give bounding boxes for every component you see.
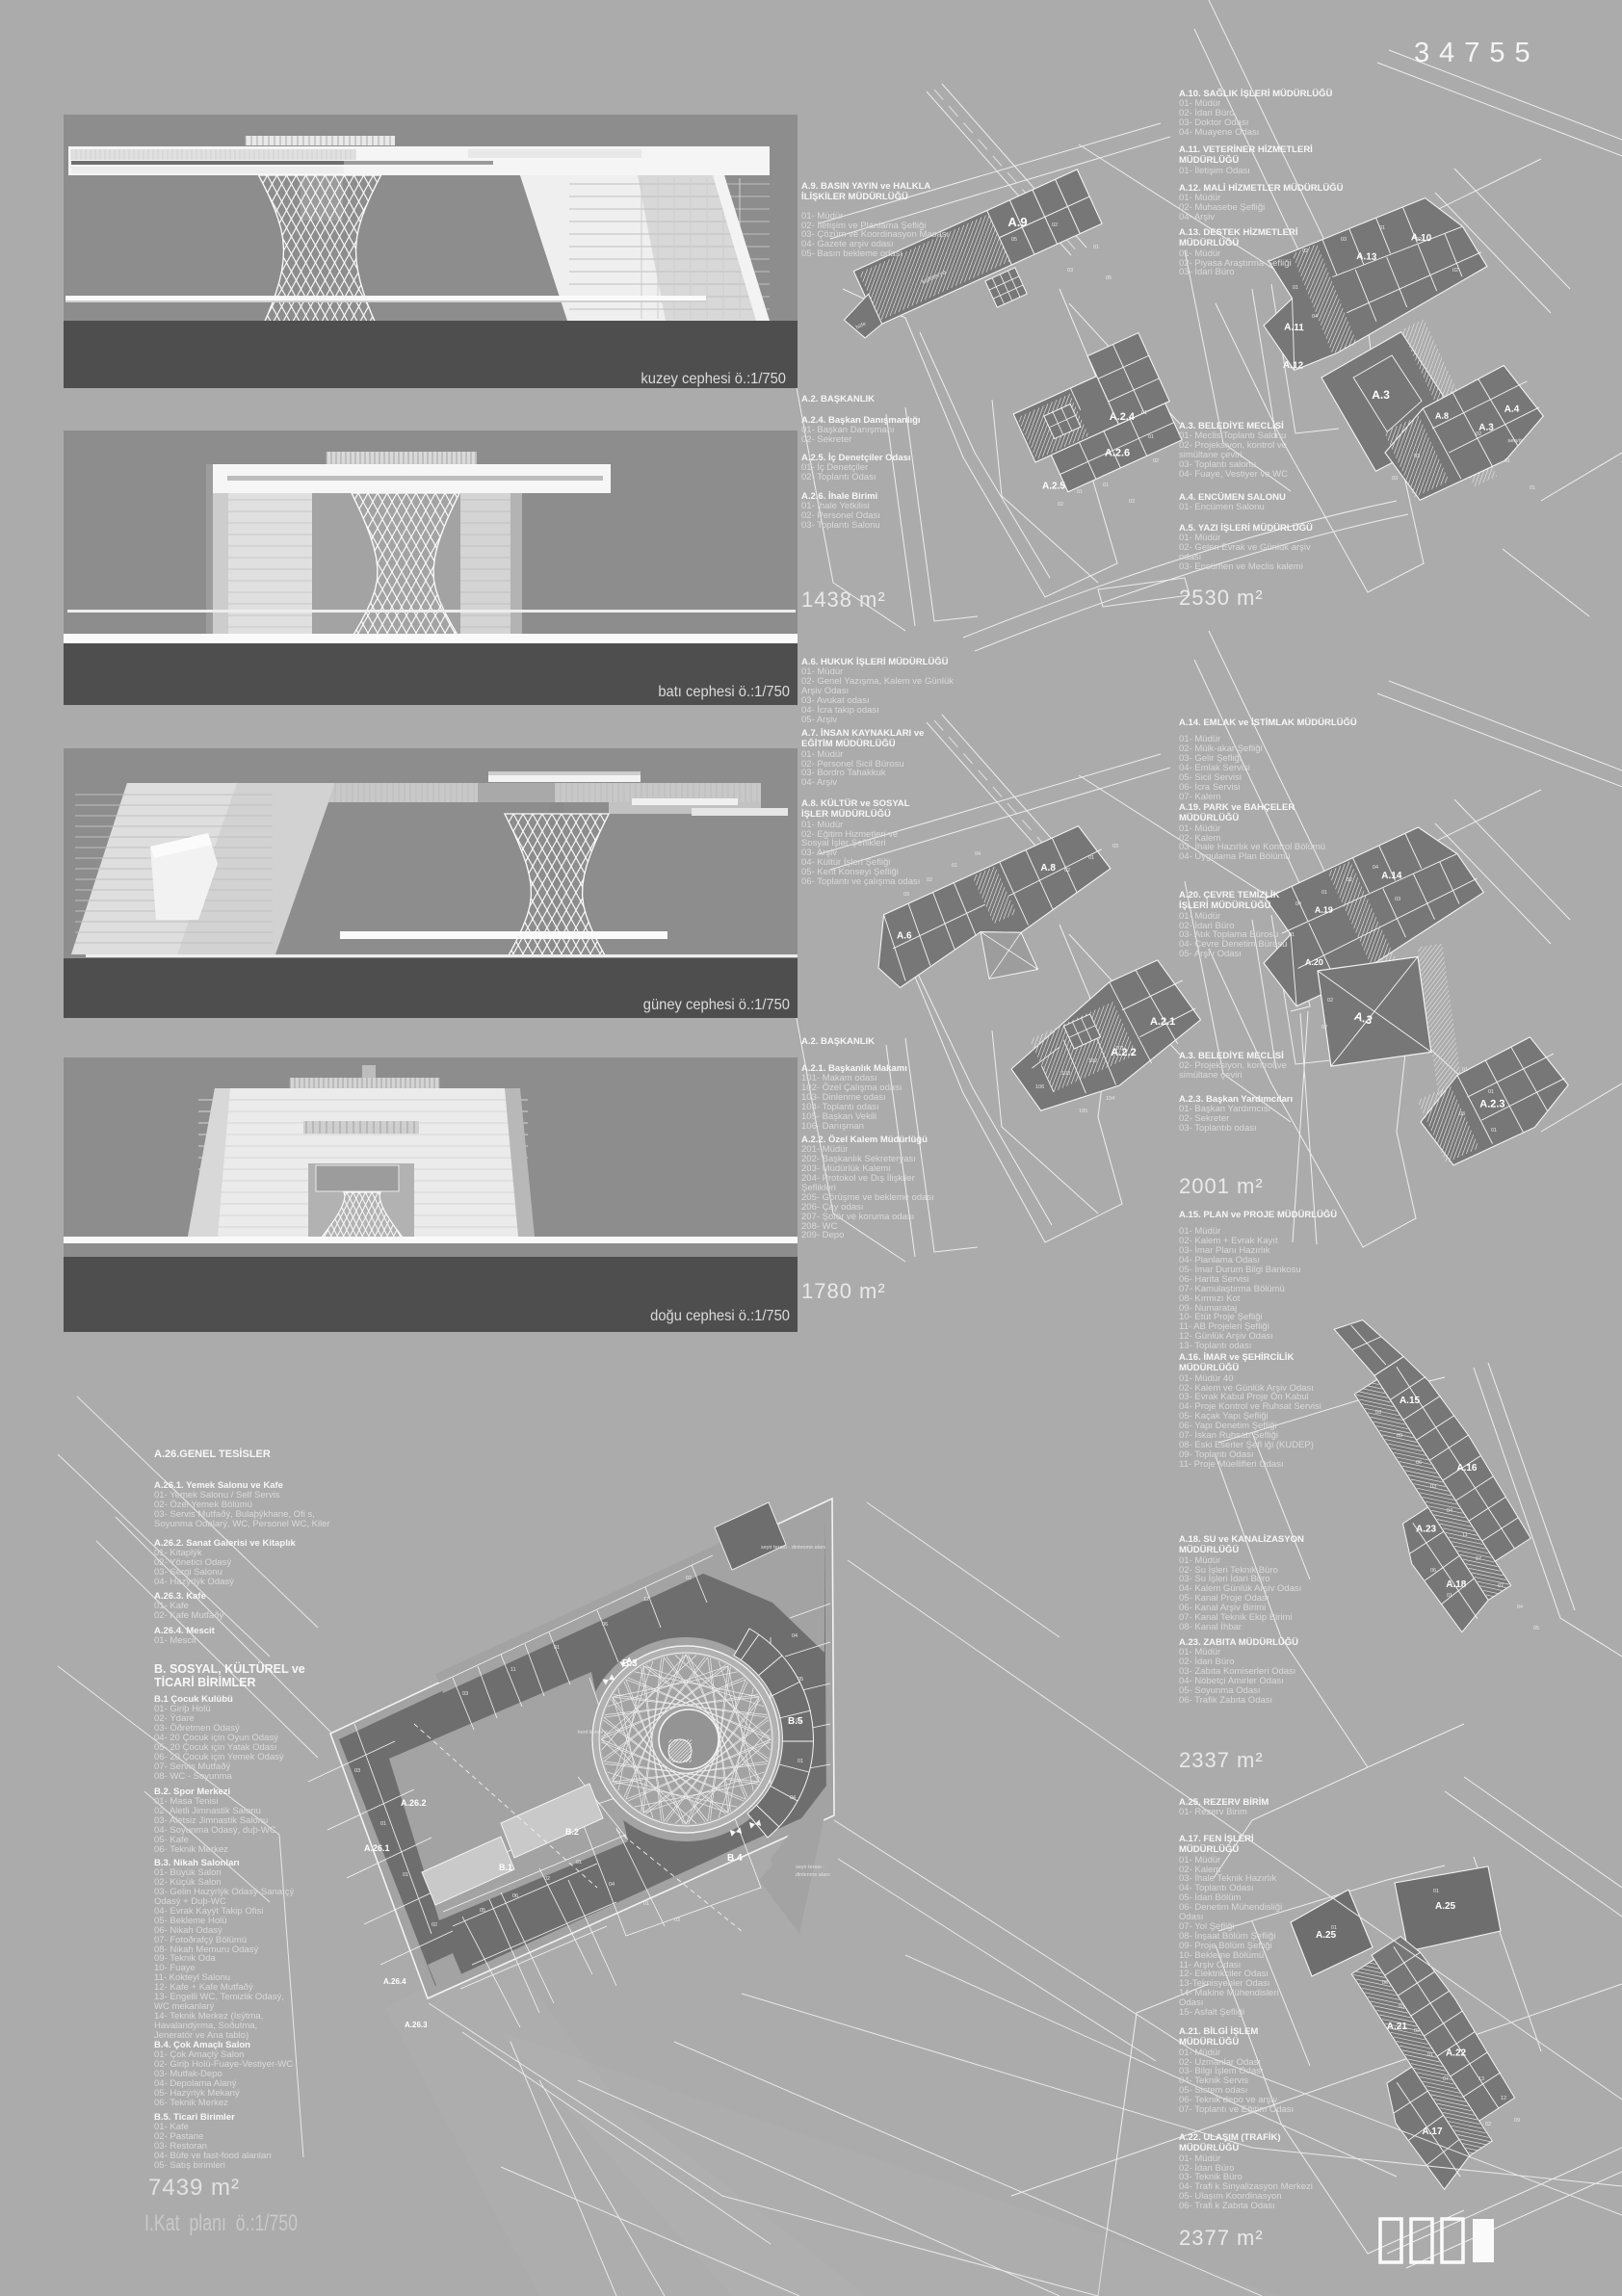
svg-text:01: 01	[1488, 1089, 1494, 1095]
svg-text:01: 01	[1462, 1067, 1468, 1073]
svg-text:A.26.4: A.26.4	[383, 1977, 406, 1986]
svg-text:02: 02	[1452, 268, 1458, 274]
svg-text:104: 104	[1106, 1096, 1114, 1102]
svg-text:A.14: A.14	[1381, 871, 1402, 881]
svg-text:kent konseyi: kent konseyi	[578, 1730, 608, 1735]
svg-text:03: 03	[1395, 897, 1400, 902]
svg-text:11: 11	[1462, 1532, 1468, 1538]
svg-text:03: 03	[1414, 454, 1420, 459]
svg-text:03: 03	[1067, 268, 1073, 274]
svg-text:03: 03	[1129, 499, 1135, 505]
svg-text:01: 01	[1148, 434, 1154, 440]
svg-text:12: 12	[1501, 2096, 1506, 2101]
svg-text:04: 04	[975, 851, 981, 857]
svg-text:01: 01	[643, 1901, 649, 1907]
svg-text:06: 06	[512, 1893, 518, 1899]
svg-text:A.9: A.9	[1007, 215, 1027, 229]
svg-text:A.15: A.15	[1400, 1396, 1421, 1406]
svg-text:02: 02	[1347, 877, 1352, 883]
svg-text:02: 02	[1052, 222, 1058, 228]
svg-text:B.2: B.2	[565, 1827, 579, 1837]
svg-text:02: 02	[544, 1876, 550, 1882]
svg-text:04: 04	[1447, 1508, 1452, 1514]
svg-text:05: 05	[480, 1908, 485, 1914]
svg-text:04: 04	[1312, 314, 1318, 320]
svg-text:02: 02	[1414, 2028, 1420, 2034]
svg-text:03: 03	[1375, 1410, 1381, 1416]
svg-text:A.26.1: A.26.1	[364, 1843, 390, 1853]
svg-text:A.13: A.13	[1356, 251, 1377, 263]
svg-text:02: 02	[1153, 458, 1159, 464]
svg-text:102: 102	[1088, 1058, 1097, 1064]
svg-text:A.2.6: A.2.6	[1105, 448, 1130, 459]
svg-text:12: 12	[643, 1597, 649, 1603]
svg-text:06: 06	[1416, 1460, 1422, 1466]
svg-text:01: 01	[798, 1759, 803, 1764]
svg-text:01: 01	[1141, 410, 1147, 416]
svg-text:A.4: A.4	[1504, 404, 1520, 415]
svg-text:A.3: A.3	[1372, 388, 1390, 402]
svg-text:02: 02	[686, 1576, 692, 1581]
svg-text:03: 03	[1459, 1111, 1465, 1117]
svg-text:A.22: A.22	[1446, 2048, 1467, 2059]
svg-text:105: 105	[1079, 1109, 1087, 1114]
svg-text:01: 01	[1504, 458, 1510, 464]
svg-text:04: 04	[1373, 865, 1378, 871]
svg-text:103: 103	[1061, 1071, 1070, 1077]
svg-text:A.21: A.21	[1387, 2022, 1408, 2032]
svg-text:A.11: A.11	[1284, 322, 1304, 333]
svg-text:03: 03	[1430, 1484, 1436, 1490]
svg-text:servis: servis	[1507, 438, 1523, 444]
svg-text:02: 02	[1321, 1025, 1327, 1031]
svg-text:03: 03	[903, 892, 909, 898]
svg-text:01: 01	[1088, 855, 1094, 861]
svg-text:A.23: A.23	[1416, 1525, 1437, 1535]
svg-text:A.16: A.16	[1456, 1463, 1478, 1474]
svg-text:09: 09	[1514, 2118, 1520, 2124]
svg-text:01: 01	[1093, 245, 1099, 250]
svg-text:A.8: A.8	[1435, 411, 1449, 421]
svg-text:01: 01	[1491, 1128, 1497, 1134]
svg-text:B.4: B.4	[727, 1853, 743, 1864]
svg-text:03: 03	[354, 1768, 360, 1774]
svg-text:A.26.2: A.26.2	[401, 1798, 427, 1808]
svg-text:02: 02	[432, 1922, 437, 1928]
svg-text:01: 01	[403, 1872, 408, 1878]
svg-text:05: 05	[796, 1718, 801, 1724]
svg-text:02: 02	[1485, 2122, 1491, 2127]
svg-text:01: 01	[1379, 225, 1385, 231]
svg-text:07: 07	[1476, 1556, 1481, 1562]
svg-text:A.26.3: A.26.3	[405, 2021, 428, 2029]
svg-text:07: 07	[1443, 2076, 1449, 2082]
svg-text:02: 02	[1476, 431, 1481, 437]
svg-text:01: 01	[1433, 1889, 1439, 1894]
svg-text:09: 09	[1397, 1433, 1402, 1439]
svg-text:02: 02	[1416, 237, 1422, 243]
svg-text:04: 04	[790, 1795, 796, 1801]
svg-text:A.18: A.18	[1446, 1579, 1467, 1590]
svg-text:01: 01	[1077, 489, 1083, 495]
svg-text:A.2.1: A.2.1	[1150, 1016, 1175, 1028]
svg-text:B.3: B.3	[622, 1658, 638, 1669]
svg-text:05: 05	[1011, 237, 1017, 243]
svg-text:02: 02	[1064, 868, 1070, 874]
svg-text:05: 05	[798, 1677, 803, 1683]
svg-text:seyir terası - dinlenme alanı: seyir terası - dinlenme alanı	[761, 1545, 826, 1551]
svg-text:A.12: A.12	[1283, 360, 1304, 372]
svg-text:01: 01	[1103, 483, 1109, 488]
svg-text:A.2.3: A.2.3	[1479, 1098, 1504, 1109]
svg-text:dinlenme alanı: dinlenme alanı	[796, 1872, 830, 1878]
svg-text:01: 01	[380, 1821, 386, 1827]
svg-text:04: 04	[609, 1882, 615, 1888]
svg-text:B.1: B.1	[499, 1863, 512, 1872]
svg-text:05: 05	[1106, 275, 1112, 281]
svg-text:03: 03	[1341, 237, 1347, 243]
svg-text:A.17: A.17	[1422, 2126, 1443, 2137]
svg-text:A.2.5: A.2.5	[1042, 482, 1065, 492]
svg-text:A.6: A.6	[897, 930, 912, 941]
svg-text:06: 06	[602, 1622, 608, 1628]
svg-text:01: 01	[1447, 1593, 1452, 1599]
svg-text:02: 02	[1058, 502, 1063, 508]
svg-text:03: 03	[462, 1691, 468, 1697]
svg-text:01: 01	[1293, 285, 1298, 291]
svg-text:A.2.4: A.2.4	[1110, 411, 1136, 423]
svg-text:106: 106	[1035, 1084, 1044, 1090]
svg-text:05: 05	[1533, 1626, 1539, 1631]
svg-text:11: 11	[510, 1667, 516, 1673]
svg-text:06: 06	[1430, 1568, 1436, 1574]
svg-text:07: 07	[1498, 1583, 1504, 1589]
svg-text:03: 03	[674, 1918, 680, 1923]
svg-text:01: 01	[1530, 485, 1535, 491]
svg-text:A.8: A.8	[1040, 863, 1056, 874]
svg-text:seyir terası -: seyir terası -	[796, 1865, 824, 1870]
svg-text:04: 04	[1517, 1605, 1523, 1610]
svg-text:03: 03	[1392, 476, 1398, 482]
svg-text:03: 03	[1399, 2004, 1404, 2010]
svg-text:101: 101	[1115, 1046, 1124, 1052]
svg-text:01: 01	[1427, 2052, 1433, 2058]
svg-text:A.25: A.25	[1435, 1901, 1456, 1912]
svg-text:06: 06	[1382, 1980, 1388, 1986]
svg-text:01: 01	[576, 1860, 582, 1865]
svg-text:04: 04	[792, 1633, 798, 1639]
svg-text:13: 13	[1478, 2076, 1484, 2082]
svg-text:02: 02	[1327, 998, 1333, 1004]
svg-text:01: 01	[554, 1645, 560, 1651]
svg-text:03: 03	[1112, 844, 1118, 849]
